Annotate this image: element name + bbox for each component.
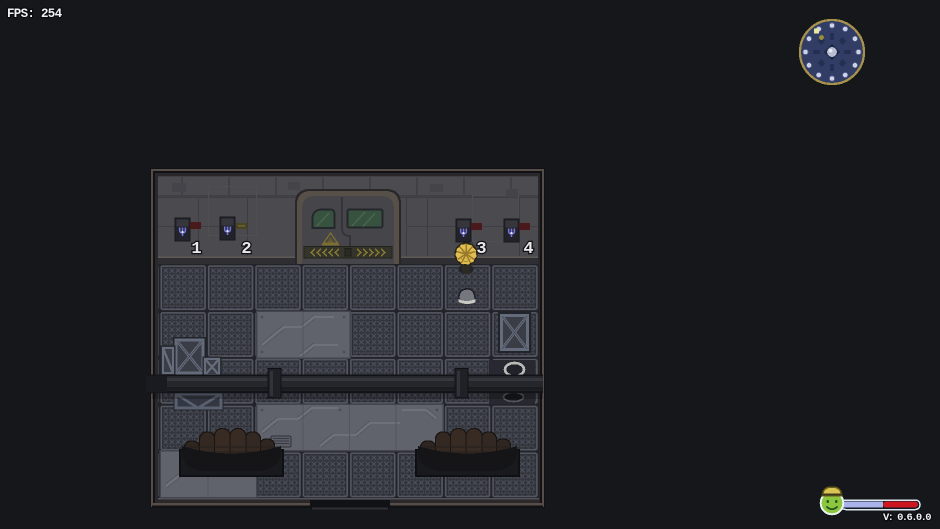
svg-text:3: 3	[476, 240, 486, 259]
svg-text:2: 2	[241, 240, 251, 259]
svg-text:4: 4	[523, 240, 533, 259]
svg-text:V: 0.6.0.0: V: 0.6.0.0	[883, 512, 931, 524]
svg-text:1: 1	[191, 240, 201, 259]
svg-text:FPS: 254: FPS: 254	[7, 7, 63, 21]
